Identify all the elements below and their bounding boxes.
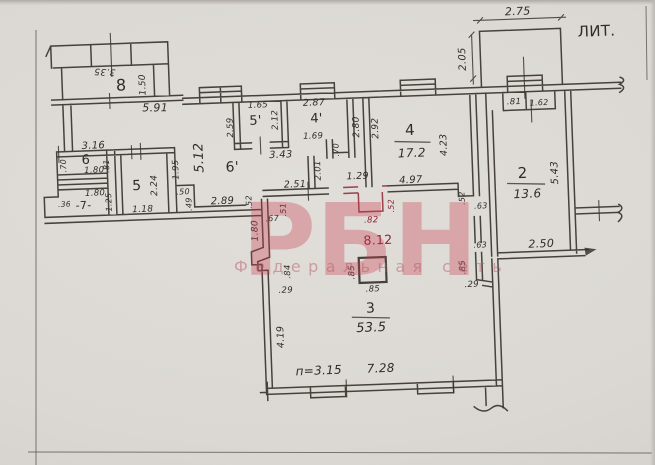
watermark-subtitle: Федеральная сеть (234, 257, 502, 276)
room3-number: 3 (366, 300, 376, 316)
watermark: РБН Федеральная сеть (234, 182, 502, 299)
frame-bottom-line (28, 452, 652, 453)
room3-area: 53.5 (356, 320, 387, 336)
scanned-floor-plan-page: 3.35 8 1.50 5.91 2.75 2.05 ЛИТ. 3.16 6 .… (0, 0, 655, 465)
dim-728: 7.28 (367, 361, 395, 376)
room5-number: 5 (132, 178, 142, 194)
dim-room4p-width: 2.87 (303, 97, 326, 109)
frame-right-line (646, 6, 647, 80)
dim-room7-width: 1.80 (85, 188, 105, 199)
dim-050: .50 (176, 187, 190, 196)
room4-number: 4 (405, 121, 415, 139)
dim-room7-height: 1.25 (104, 192, 114, 211)
watermark-logo: РБН (242, 182, 478, 299)
dim-room2-081: .81 (507, 97, 522, 108)
dim-070: .70 (331, 143, 340, 157)
room7-number: -7- (75, 199, 91, 213)
room2-number: 2 (517, 164, 527, 182)
room8-number: 8 (116, 75, 127, 94)
dim-289: 2.89 (211, 195, 235, 207)
dim-wall-591: 5.91 (142, 101, 168, 114)
dim-wall-195: 1.95 (171, 159, 182, 179)
dim-room5p-left: 2.59 (225, 117, 236, 137)
dim-wall-316: 3.16 (81, 140, 105, 152)
litera-note: ЛИТ. (577, 21, 615, 40)
dim-balcony-depth: 2.05 (457, 47, 469, 71)
dim-room5p-width: 1.65 (248, 100, 268, 111)
dim-543: 5.43 (549, 161, 561, 185)
dim-room5-height: 2.24 (149, 175, 160, 197)
dim-room6-left: .70 (59, 159, 68, 173)
dim-room7-left: .36 (58, 199, 71, 208)
dim-balcony-width: 2.75 (505, 5, 531, 19)
floor-plan-svg: 3.35 8 1.50 5.91 2.75 2.05 ЛИТ. 3.16 6 .… (0, 0, 655, 465)
dim-049: .49 (184, 197, 193, 211)
ceiling-height-note: п=3.15 (295, 363, 342, 379)
corridor-number: 6' (225, 159, 239, 175)
dim-201: 2.01 (313, 160, 324, 180)
room4-area: 17.2 (398, 145, 426, 160)
room2-area: 13.6 (513, 186, 541, 201)
dim-room5-width: 1.18 (132, 204, 154, 215)
dim-250: 2.50 (528, 237, 554, 251)
dimension-arrow (584, 247, 596, 255)
dim-292: 2.92 (371, 117, 382, 139)
dim-room8-height: 1.50 (138, 74, 149, 96)
dim-room6-height: .81 (102, 159, 111, 173)
dim-419: 4.19 (275, 325, 287, 348)
dim-porch-width: 3.35 (94, 66, 116, 77)
dim-169: 1.69 (303, 131, 323, 142)
dim-room4p-height: 2.80 (351, 116, 362, 138)
dim-129: 1.29 (346, 171, 369, 183)
dim-423: 4.23 (438, 133, 450, 156)
room4p-number: 4' (310, 111, 323, 126)
dim-343: 3.43 (269, 149, 293, 161)
dim-room2-162: 1.62 (529, 98, 548, 108)
dim-room5p-height: 2.12 (270, 110, 281, 130)
room5p-number: 5' (249, 113, 262, 128)
dim-corridor-length: 5.12 (191, 142, 207, 173)
